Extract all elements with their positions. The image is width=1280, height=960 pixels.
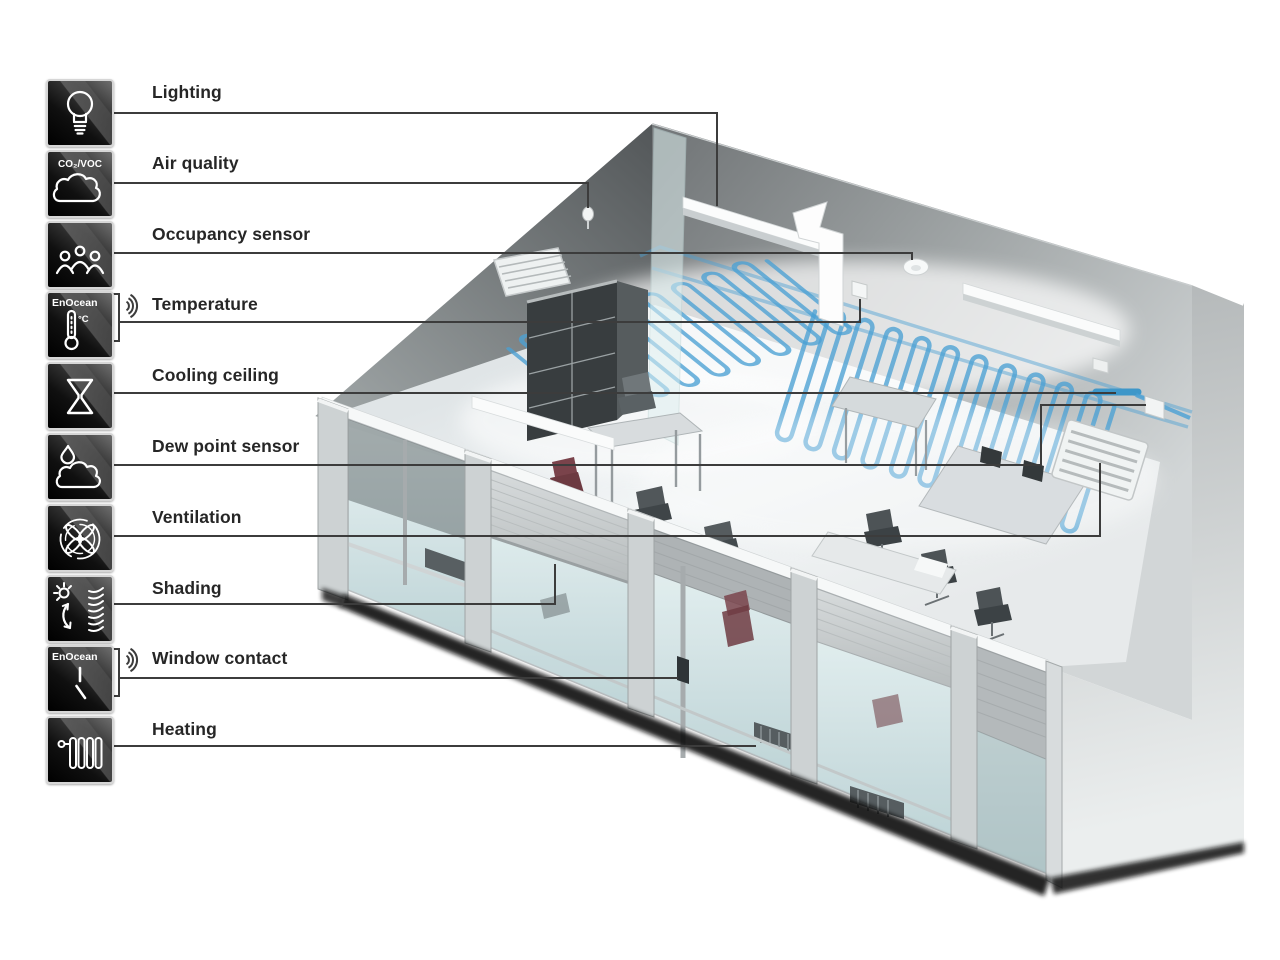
- building-automation-diagram: Lighting CO₂/VOC Air quality Occupancy s…: [0, 0, 1280, 960]
- legend-item-temperature: EnOcean °C Temperature: [46, 291, 466, 361]
- legend-item-dew-point: Dew point sensor: [46, 433, 466, 503]
- legend-item-ventilation: Ventilation: [46, 504, 466, 574]
- legend-label: Ventilation: [152, 507, 242, 528]
- svg-text:CO₂/VOC: CO₂/VOC: [58, 159, 102, 170]
- red-chair: [872, 694, 903, 728]
- legend-label: Temperature: [152, 294, 258, 315]
- light-bulb-icon: [46, 79, 114, 147]
- shading-blinds-icon: [46, 575, 114, 643]
- air-quality-sensor: [583, 207, 594, 221]
- legend-item-occupancy: Occupancy sensor: [46, 221, 466, 291]
- legend-item-shading: Shading: [46, 575, 466, 645]
- legend-item-lighting: Lighting: [46, 79, 466, 149]
- legend-item-window-contact: EnOcean Window contact: [46, 645, 466, 715]
- legend-label: Air quality: [152, 153, 239, 174]
- window-contact-sensor: [677, 656, 689, 684]
- legend-label: Heating: [152, 719, 217, 740]
- svg-text:EnOcean: EnOcean: [52, 651, 98, 663]
- legend-label: Lighting: [152, 82, 222, 103]
- cooling-ceiling-icon: [46, 362, 114, 430]
- legend-label: Cooling ceiling: [152, 365, 279, 386]
- occupancy-sensor-lens: [911, 265, 921, 271]
- occupancy-people-icon: [46, 221, 114, 289]
- legend-label: Window contact: [152, 648, 287, 669]
- svg-text:°C: °C: [78, 314, 89, 325]
- legend-item-air-quality: CO₂/VOC Air quality: [46, 150, 466, 220]
- temperature-thermometer-icon: EnOcean °C: [46, 291, 114, 359]
- window-contact-icon: EnOcean: [46, 645, 114, 713]
- heating-radiator-icon: [46, 716, 114, 784]
- legend-label: Shading: [152, 578, 222, 599]
- ventilation-fan-icon: [46, 504, 114, 572]
- air-quality-cloud-icon: CO₂/VOC: [46, 150, 114, 218]
- legend-item-heating: Heating: [46, 716, 466, 786]
- svg-text:EnOcean: EnOcean: [52, 297, 98, 309]
- dew-point-icon: [46, 433, 114, 501]
- legend-item-cooling-ceiling: Cooling ceiling: [46, 362, 466, 432]
- legend-label: Occupancy sensor: [152, 224, 310, 245]
- legend-label: Dew point sensor: [152, 436, 299, 457]
